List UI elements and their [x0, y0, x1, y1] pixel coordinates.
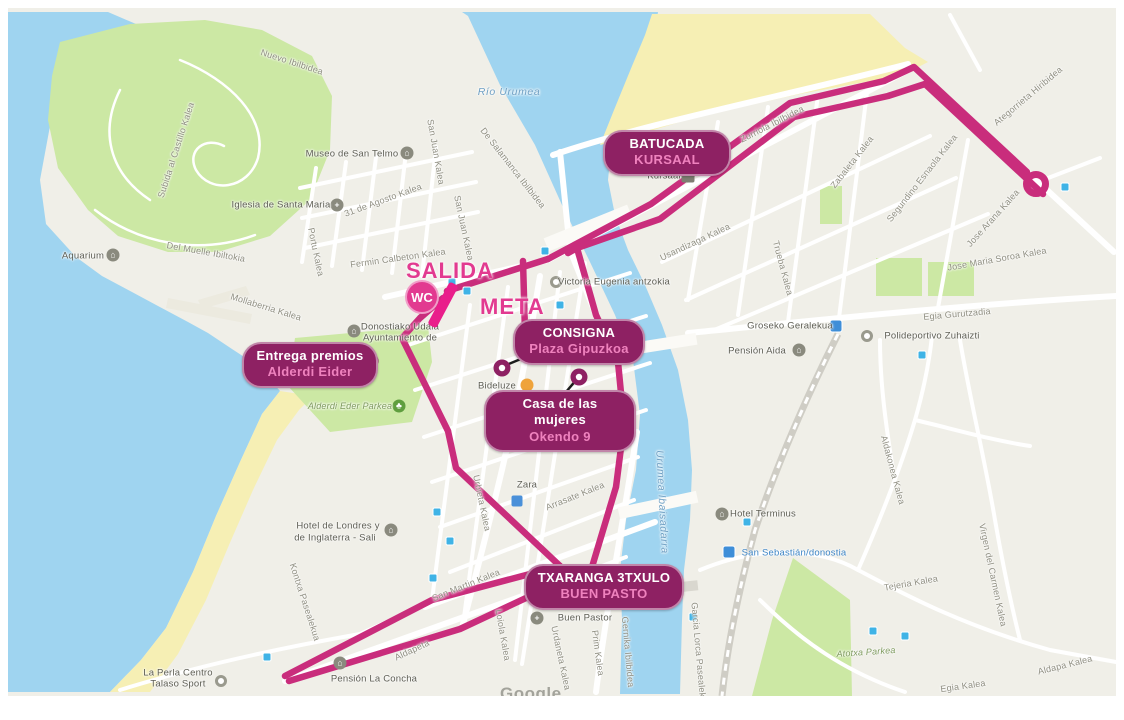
poi-label: Hotel de Londres y	[296, 521, 379, 532]
event-pill-txaranga: TXARANGA 3TXULO BUEN PASTO	[524, 564, 684, 610]
transit-label: San Sebastián/donostia	[742, 548, 847, 559]
train-station-icon	[723, 546, 736, 559]
hotel-icon: ⌂	[716, 508, 729, 521]
map-frame	[0, 696, 1124, 720]
sports-icon	[861, 330, 873, 342]
hotel-icon: ⌂	[385, 524, 398, 537]
transit-stop-icon	[263, 653, 272, 662]
park-tree-icon: ♣	[393, 400, 406, 413]
shop-icon	[512, 496, 523, 507]
pension-icon: ⌂	[793, 344, 806, 357]
poi-label: Pensión Aida	[728, 346, 786, 357]
poi-label: de Inglaterra - Sali	[294, 533, 376, 544]
map-frame	[0, 0, 1124, 8]
poi-label: Groseko Geralekua	[747, 321, 833, 332]
meta-finish-label: META	[480, 294, 545, 320]
transit-stop-icon	[429, 574, 438, 583]
transit-stop-icon	[869, 627, 878, 636]
poi-label: La Perla Centro	[143, 668, 213, 679]
race-route-map: Nuevo IbilbideaSubida al Castillo KaleaD…	[0, 0, 1124, 720]
poi-label: Ayuntamiento de	[363, 333, 437, 344]
pill-title: CONSIGNA	[525, 325, 633, 341]
area-label: Alderdi Eder Parkea	[308, 401, 392, 411]
event-pill-entrega-premios: Entrega premios Alderdi Eider	[242, 342, 378, 388]
pill-subtitle: Alderdi Eider	[254, 364, 366, 380]
poi-label: Hotel Terminus	[730, 509, 796, 520]
aquarium-icon: ⌂	[107, 249, 120, 262]
event-pill-consigna: CONSIGNA Plaza Gipuzkoa	[513, 319, 645, 365]
poi-label: Iglesia de Santa Maria	[232, 200, 331, 211]
gros-park	[876, 258, 922, 296]
pill-title: Casa de las mujeres	[496, 396, 624, 429]
event-pill-batucada: BATUCADA KURSAAL	[603, 130, 731, 176]
poi-label: Pensión La Concha	[331, 674, 417, 685]
transit-stop-icon	[1061, 183, 1070, 192]
water-label: Río Urumea	[478, 86, 541, 98]
poi-label: Zara	[517, 480, 537, 491]
poi-label: Aquarium	[62, 251, 104, 262]
church-icon: +	[331, 199, 344, 212]
poi-label: Buen Pastor	[558, 613, 612, 624]
pill-subtitle: KURSAAL	[615, 152, 719, 168]
transit-stop-icon	[541, 247, 550, 256]
transit-stop-icon	[446, 537, 455, 546]
pill-subtitle: Plaza Gipuzkoa	[525, 341, 633, 357]
map-frame	[1116, 0, 1124, 720]
pill-subtitle: BUEN PASTO	[536, 586, 672, 602]
church-icon: +	[531, 612, 544, 625]
wc-badge: WC	[405, 280, 439, 314]
map-frame	[0, 0, 8, 720]
poi-label: Victoria Eugenia antzokia	[558, 277, 670, 288]
museum-icon: ⌂	[401, 147, 414, 160]
transit-stop-icon	[901, 632, 910, 641]
transit-stop-icon	[556, 301, 565, 310]
spa-icon	[215, 675, 227, 687]
pill-title: TXARANGA 3TXULO	[536, 570, 672, 586]
pension-icon: ⌂	[334, 657, 347, 670]
poi-label: Talaso Sport	[150, 679, 205, 690]
transit-stop-icon	[463, 287, 472, 296]
poi-label: Museo de San Telmo	[306, 149, 399, 160]
event-pill-casa-mujeres: Casa de las mujeres Okendo 9	[484, 390, 636, 452]
pill-title: Entrega premios	[254, 348, 366, 364]
city-hall-icon: ⌂	[348, 325, 361, 338]
transit-stop-icon	[918, 351, 927, 360]
poi-label: Polideportivo Zuhaizti	[884, 331, 979, 342]
gros-park	[820, 186, 842, 224]
pill-subtitle: Okendo 9	[496, 429, 624, 445]
transit-stop-icon	[433, 508, 442, 517]
pill-title: BATUCADA	[615, 136, 719, 152]
